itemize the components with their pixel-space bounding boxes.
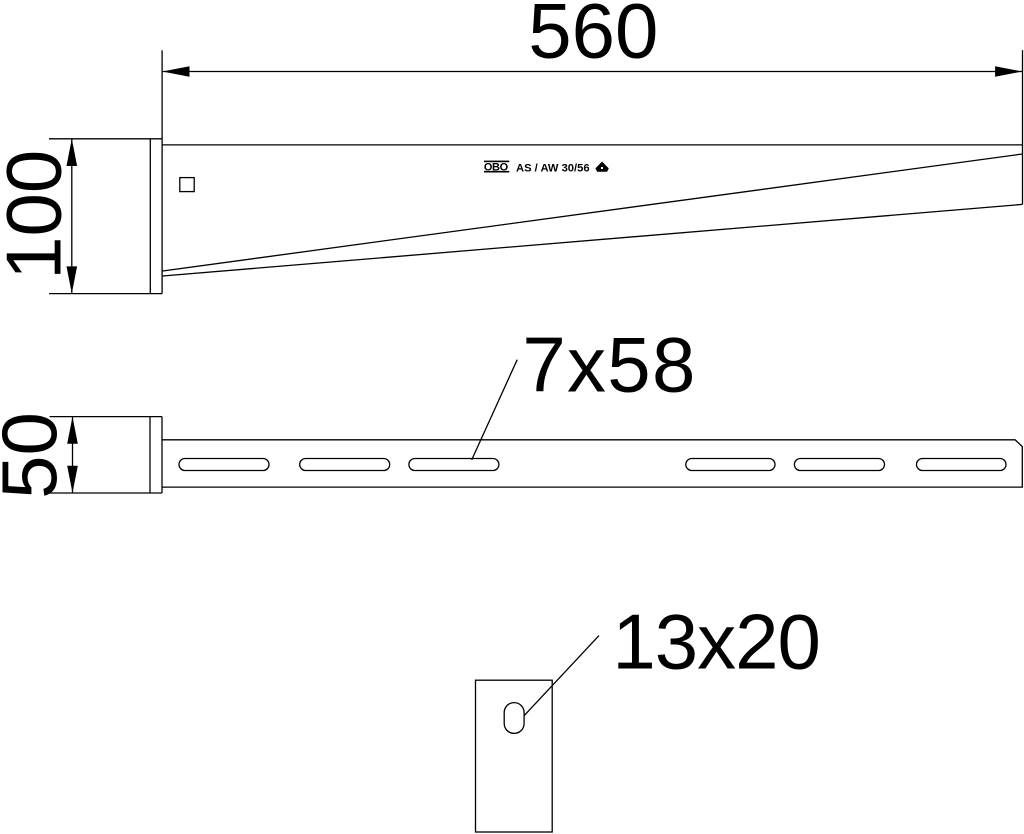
svg-text:50: 50 (0, 412, 73, 499)
svg-text:7x58: 7x58 (522, 321, 696, 409)
svg-text:AS / AW 30/56: AS / AW 30/56 (516, 163, 590, 175)
svg-text:100: 100 (0, 150, 78, 280)
svg-text:OBO: OBO (484, 162, 509, 174)
svg-text:13x20: 13x20 (612, 598, 820, 686)
svg-text:560: 560 (528, 0, 658, 75)
